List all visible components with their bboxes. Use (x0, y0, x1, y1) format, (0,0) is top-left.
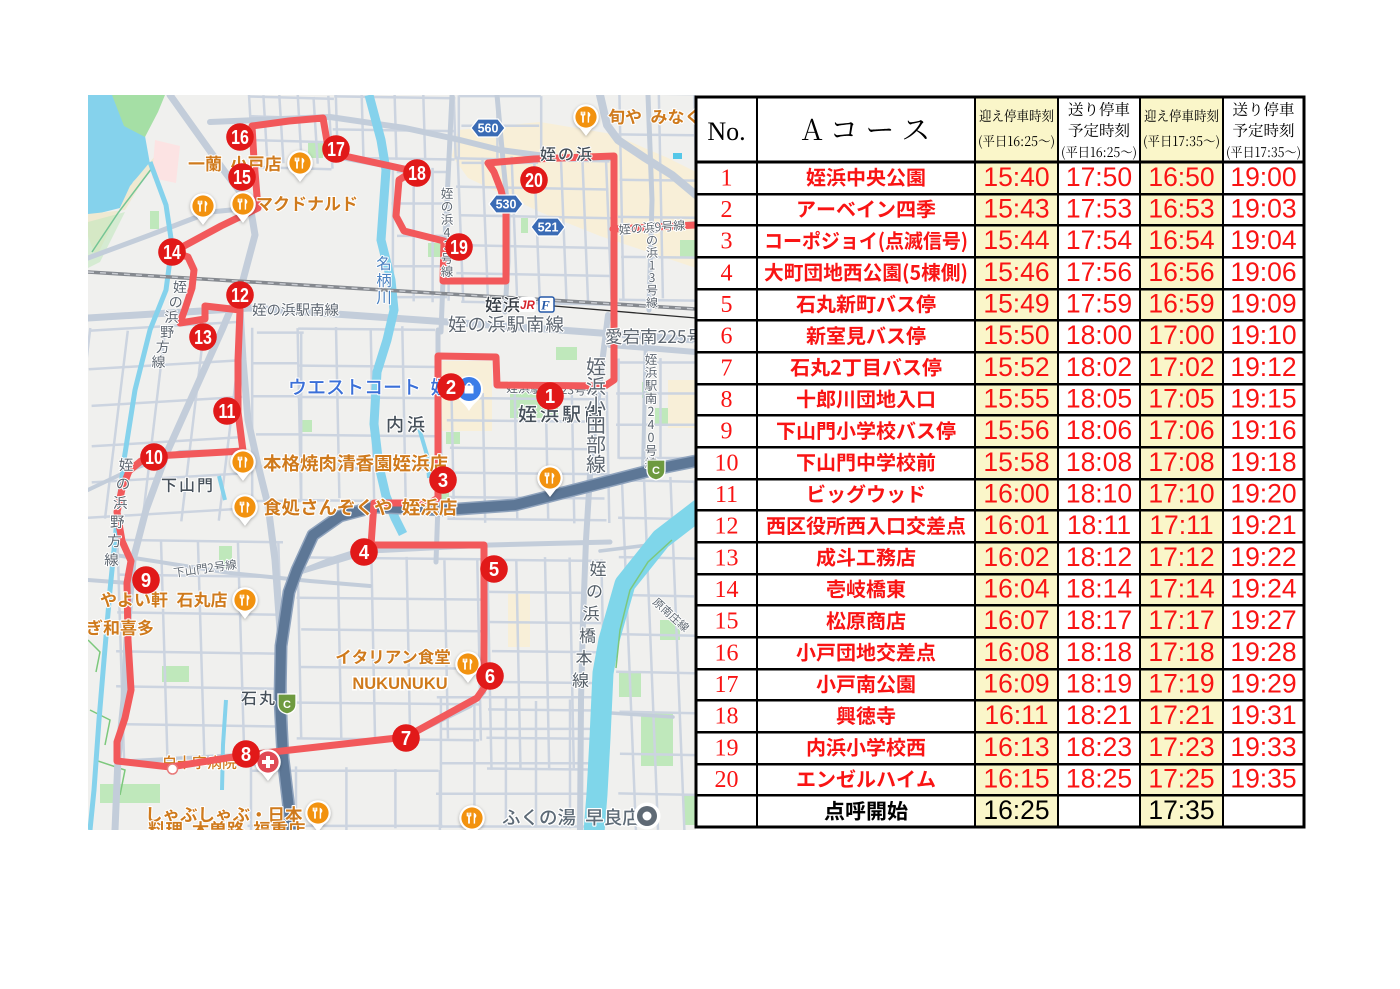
svg-text:19:16: 19:16 (1230, 415, 1296, 445)
svg-text:8: 8 (721, 387, 733, 413)
svg-text:19:12: 19:12 (1230, 352, 1296, 382)
svg-text:5: 5 (721, 292, 733, 318)
svg-text:20: 20 (525, 168, 543, 191)
svg-text:18:08: 18:08 (1066, 447, 1132, 477)
svg-text:18: 18 (408, 161, 426, 184)
svg-text:16:02: 16:02 (983, 542, 1049, 572)
svg-text:18:12: 18:12 (1066, 542, 1132, 572)
svg-text:15:43: 15:43 (983, 194, 1049, 224)
svg-text:19:28: 19:28 (1230, 637, 1296, 667)
svg-text:18: 18 (715, 704, 739, 730)
svg-text:14: 14 (163, 240, 181, 263)
svg-text:JR: JR (520, 300, 535, 312)
svg-text:16:15: 16:15 (983, 764, 1049, 794)
svg-text:16:59: 16:59 (1148, 289, 1214, 319)
svg-text:19:15: 19:15 (1230, 384, 1296, 414)
svg-text:19: 19 (715, 735, 739, 761)
svg-text:17:23: 17:23 (1148, 732, 1214, 762)
svg-text:18:00: 18:00 (1066, 320, 1132, 350)
svg-text:16:11: 16:11 (984, 700, 1048, 730)
svg-text:10: 10 (715, 450, 739, 476)
svg-text:3: 3 (438, 469, 448, 492)
svg-text:19:31: 19:31 (1230, 700, 1296, 730)
svg-text:17:11: 17:11 (1149, 510, 1213, 540)
svg-text:18:23: 18:23 (1066, 732, 1132, 762)
svg-text:11: 11 (219, 399, 236, 422)
svg-text:18:10: 18:10 (1066, 479, 1132, 509)
svg-text:16:04: 16:04 (983, 574, 1049, 604)
svg-text:No.: No. (707, 117, 745, 146)
svg-text:C: C (652, 465, 660, 477)
svg-text:18:21: 18:21 (1066, 700, 1132, 730)
svg-text:19:33: 19:33 (1230, 732, 1296, 762)
svg-text:13: 13 (194, 325, 212, 348)
svg-text:9: 9 (141, 569, 151, 592)
svg-text:17:18: 17:18 (1148, 637, 1214, 667)
svg-text:16:53: 16:53 (1148, 194, 1214, 224)
svg-text:14: 14 (715, 577, 739, 603)
svg-text:17: 17 (327, 137, 345, 160)
svg-text:18:17: 18:17 (1066, 605, 1132, 635)
svg-text:4: 4 (721, 260, 733, 286)
svg-text:16:50: 16:50 (1148, 162, 1214, 192)
svg-text:15:40: 15:40 (983, 162, 1049, 192)
svg-text:19:04: 19:04 (1230, 225, 1296, 255)
svg-text:18:05: 18:05 (1066, 384, 1132, 414)
svg-text:15:49: 15:49 (983, 289, 1049, 319)
svg-text:3: 3 (721, 229, 733, 255)
svg-text:17:08: 17:08 (1148, 447, 1214, 477)
svg-text:17:21: 17:21 (1148, 700, 1214, 730)
svg-text:19:18: 19:18 (1230, 447, 1296, 477)
svg-text:2: 2 (446, 376, 456, 399)
svg-text:19:10: 19:10 (1230, 320, 1296, 350)
svg-text:1: 1 (721, 165, 733, 191)
svg-text:19:21: 19:21 (1230, 510, 1296, 540)
svg-text:4: 4 (359, 541, 369, 564)
svg-text:15:52: 15:52 (983, 352, 1049, 382)
svg-text:16:00: 16:00 (983, 479, 1049, 509)
svg-text:18:18: 18:18 (1066, 637, 1132, 667)
svg-text:16:54: 16:54 (1148, 225, 1214, 255)
svg-text:16:08: 16:08 (983, 637, 1049, 667)
svg-text:16: 16 (715, 640, 739, 666)
svg-text:18:14: 18:14 (1066, 574, 1132, 604)
svg-text:17:53: 17:53 (1066, 194, 1132, 224)
svg-text:19:20: 19:20 (1230, 479, 1296, 509)
svg-text:6: 6 (485, 665, 495, 688)
svg-text:12: 12 (715, 514, 739, 540)
svg-text:530: 530 (496, 198, 517, 212)
svg-text:17:54: 17:54 (1066, 225, 1132, 255)
svg-text:17:19: 17:19 (1148, 669, 1214, 699)
svg-text:16:09: 16:09 (983, 669, 1049, 699)
svg-text:15:55: 15:55 (983, 384, 1049, 414)
svg-text:F: F (540, 298, 550, 313)
svg-text:18:19: 18:19 (1066, 669, 1132, 699)
svg-text:16:13: 16:13 (983, 732, 1049, 762)
svg-text:11: 11 (715, 482, 738, 508)
svg-text:19:09: 19:09 (1230, 289, 1296, 319)
svg-text:8: 8 (241, 743, 251, 766)
svg-text:16:25: 16:25 (983, 795, 1049, 825)
svg-text:16:56: 16:56 (1148, 257, 1214, 287)
svg-text:18:11: 18:11 (1067, 510, 1131, 540)
svg-text:18:06: 18:06 (1066, 415, 1132, 445)
svg-text:17:10: 17:10 (1148, 479, 1214, 509)
svg-text:16:07: 16:07 (983, 605, 1049, 635)
svg-text:17:35: 17:35 (1148, 795, 1214, 825)
svg-text:17:00: 17:00 (1148, 320, 1214, 350)
svg-text:18:02: 18:02 (1066, 352, 1132, 382)
svg-text:521: 521 (538, 221, 559, 235)
svg-text:560: 560 (478, 122, 499, 136)
svg-text:19:35: 19:35 (1230, 764, 1296, 794)
svg-text:19:27: 19:27 (1230, 605, 1296, 635)
svg-text:17: 17 (715, 672, 739, 698)
svg-text:17:50: 17:50 (1066, 162, 1132, 192)
svg-text:17:14: 17:14 (1148, 574, 1214, 604)
svg-text:16: 16 (231, 125, 249, 148)
svg-text:15:58: 15:58 (983, 447, 1049, 477)
svg-text:15:50: 15:50 (983, 320, 1049, 350)
svg-text:19: 19 (450, 235, 468, 258)
svg-text:19:29: 19:29 (1230, 669, 1296, 699)
svg-text:C: C (283, 699, 291, 711)
svg-text:15:56: 15:56 (983, 415, 1049, 445)
svg-text:17:56: 17:56 (1066, 257, 1132, 287)
svg-text:17:59: 17:59 (1066, 289, 1132, 319)
svg-text:17:25: 17:25 (1148, 764, 1214, 794)
svg-text:17:02: 17:02 (1148, 352, 1214, 382)
svg-text:17:12: 17:12 (1148, 542, 1214, 572)
svg-text:10: 10 (145, 445, 163, 468)
svg-text:17:05: 17:05 (1148, 384, 1214, 414)
svg-text:19:03: 19:03 (1230, 194, 1296, 224)
svg-text:19:24: 19:24 (1230, 574, 1296, 604)
svg-text:19:22: 19:22 (1230, 542, 1296, 572)
svg-text:7: 7 (721, 355, 733, 381)
svg-text:15: 15 (715, 609, 739, 635)
svg-text:12: 12 (231, 283, 249, 306)
svg-text:1: 1 (545, 385, 555, 408)
svg-text:16:01: 16:01 (983, 510, 1049, 540)
svg-text:9: 9 (721, 419, 733, 445)
svg-text:18:25: 18:25 (1066, 764, 1132, 794)
svg-text:6: 6 (721, 324, 733, 350)
svg-text:NUKUNUKU: NUKUNUKU (352, 675, 447, 693)
svg-text:19:06: 19:06 (1230, 257, 1296, 287)
svg-text:5: 5 (489, 558, 499, 581)
svg-text:17:17: 17:17 (1148, 605, 1214, 635)
svg-text:7: 7 (401, 727, 411, 750)
svg-text:15:44: 15:44 (983, 225, 1049, 255)
svg-text:15: 15 (233, 165, 251, 188)
svg-text:2: 2 (721, 197, 733, 223)
svg-text:15:46: 15:46 (983, 257, 1049, 287)
svg-text:20: 20 (715, 767, 739, 793)
svg-text:13: 13 (715, 545, 739, 571)
svg-text:19:00: 19:00 (1230, 162, 1296, 192)
svg-text:17:06: 17:06 (1148, 415, 1214, 445)
